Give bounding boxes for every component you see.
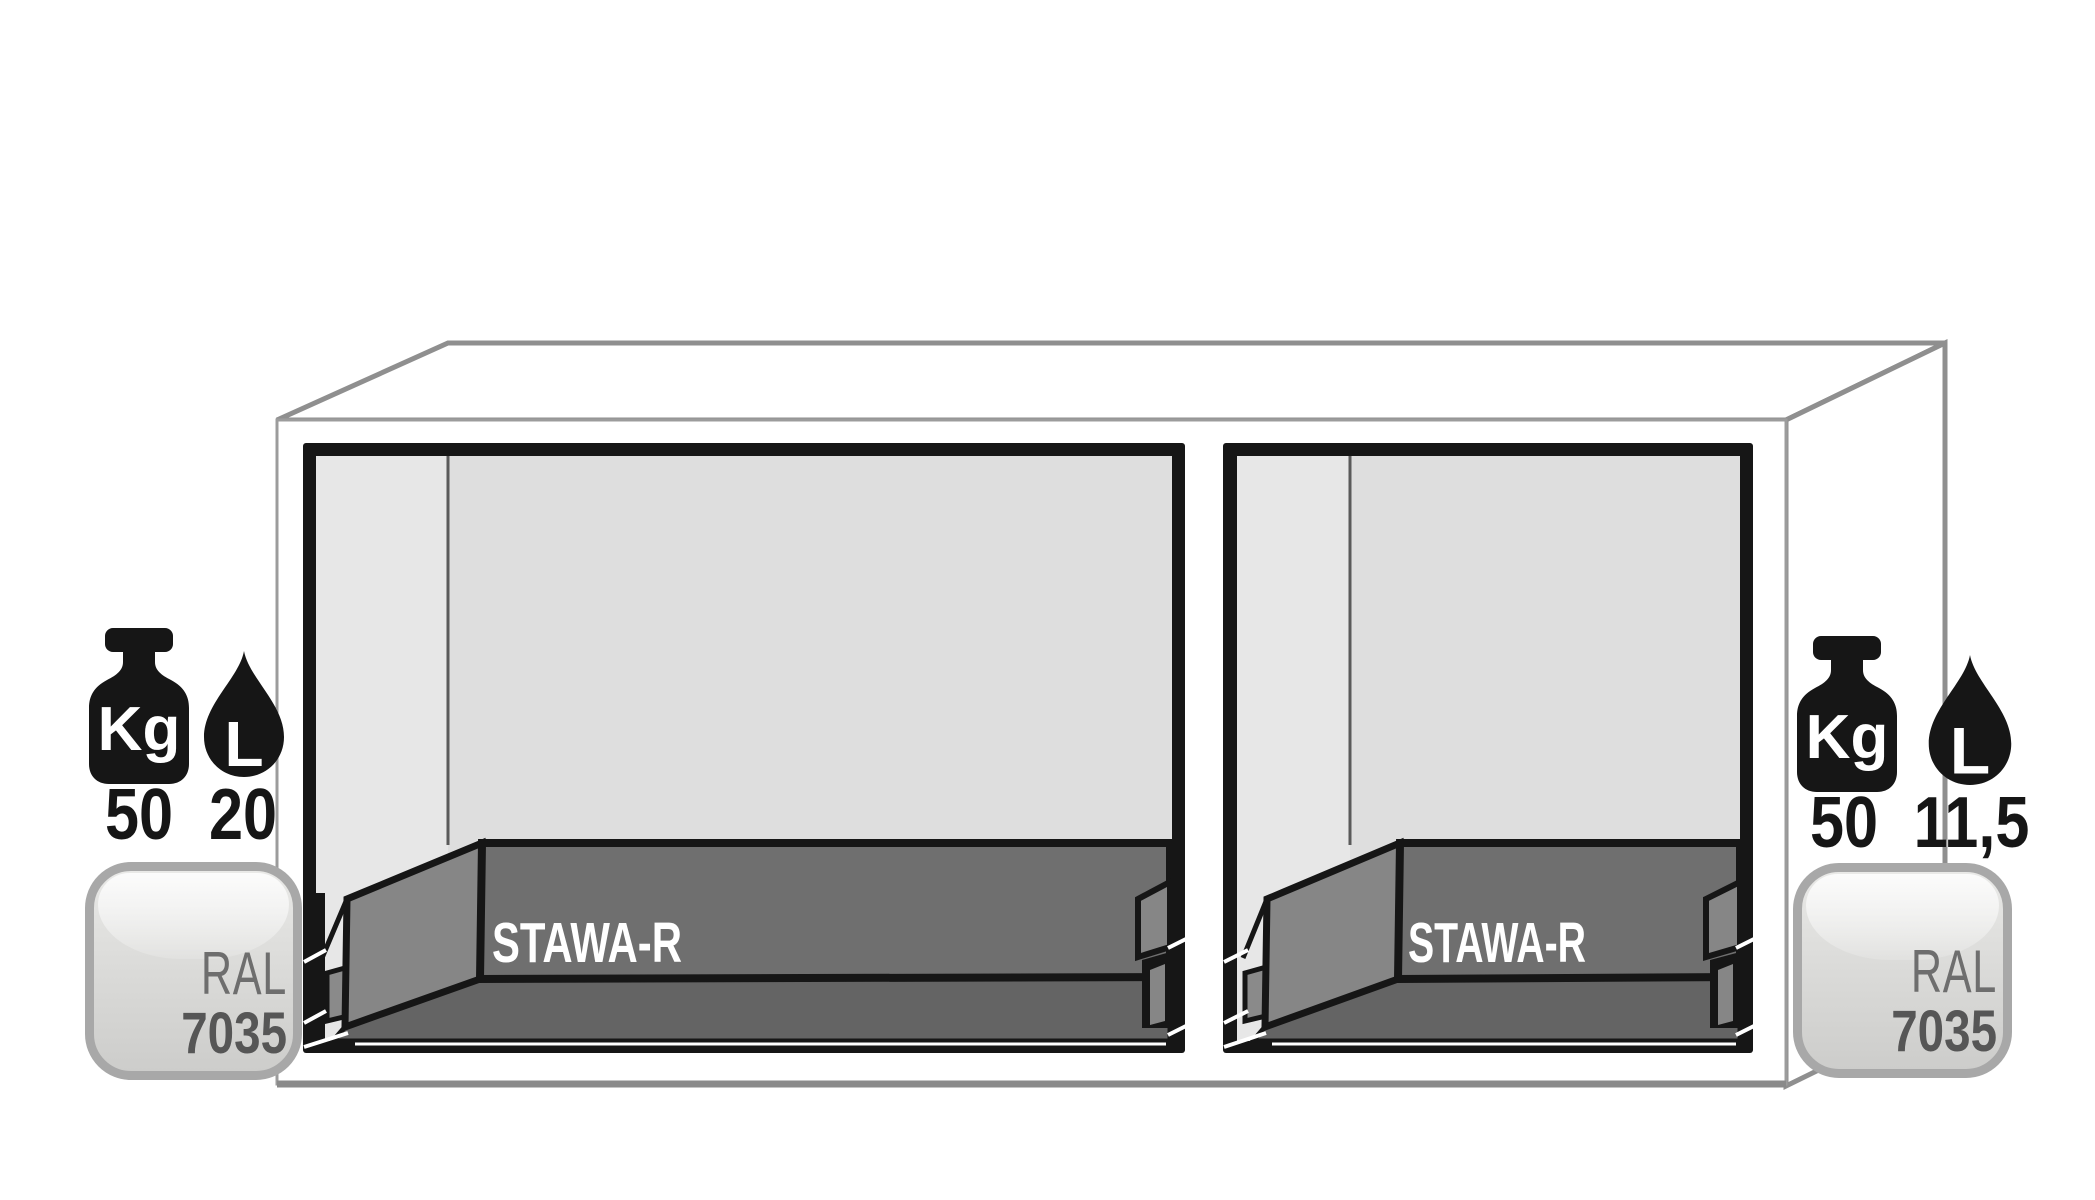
compartment-left: STAWA-R xyxy=(303,443,1186,1053)
ral-badge-left: RAL 7035 xyxy=(85,862,302,1080)
drawer-label-right: STAWA-R xyxy=(1408,911,1586,975)
drawer-label-left: STAWA-R xyxy=(492,911,682,975)
ral-label: RAL xyxy=(1904,943,1997,1000)
rail-bracket-inner xyxy=(1718,964,1733,1025)
drop-icon: L xyxy=(1926,654,2014,786)
weight-unit-label: Kg xyxy=(98,695,181,764)
weight-icon: Kg xyxy=(1795,636,1899,794)
ral-badge-right: RAL 7035 xyxy=(1793,863,2012,1078)
ral-code: 7035 xyxy=(1891,1003,1997,1061)
load-capacity-value-left: 50 xyxy=(88,779,190,851)
weight-unit-label: Kg xyxy=(1806,703,1889,772)
drop-icon: L xyxy=(202,650,286,778)
rail-column-icon xyxy=(305,893,325,1049)
load-capacity-value-right: 50 xyxy=(1793,787,1895,859)
volume-unit-label: L xyxy=(224,708,263,778)
cabinet-diagram: STAWA-R xyxy=(0,0,2095,1200)
rail-fin-icon xyxy=(1706,882,1740,957)
sump-volume-value-left: 20 xyxy=(192,779,294,851)
volume-unit-label: L xyxy=(1950,714,1990,786)
sump-volume-value-right: 11,5 xyxy=(1910,787,2033,859)
weight-icon: Kg xyxy=(87,628,191,786)
drawer-left: STAWA-R xyxy=(304,843,1186,1049)
rail-fin-icon xyxy=(1138,882,1170,957)
compartment-right: STAWA-R xyxy=(1223,443,1754,1053)
cabinet-scene: STAWA-R xyxy=(0,0,2095,1200)
ral-label: RAL xyxy=(194,945,287,1002)
ral-code: 7035 xyxy=(181,1005,287,1063)
cabinet-top-face xyxy=(277,343,1945,420)
rail-bracket-inner xyxy=(1150,964,1165,1025)
